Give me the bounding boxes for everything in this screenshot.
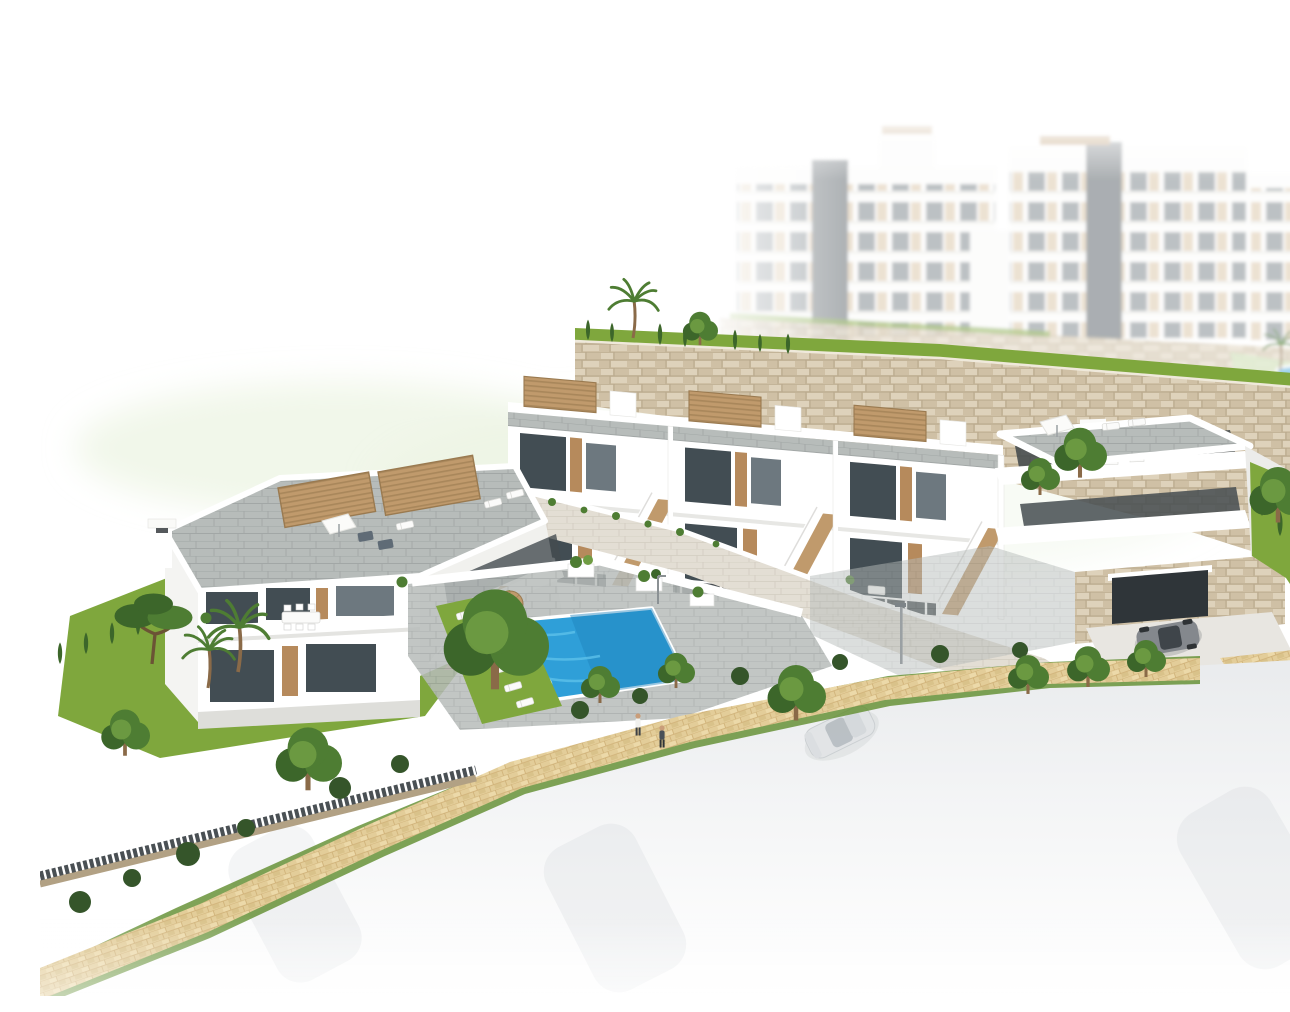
bottom-fade — [40, 916, 1290, 996]
architectural-render: Aerial 3D architectural rendering of a w… — [40, 16, 1290, 996]
terrace-dining-set — [282, 604, 320, 630]
villa-chimney — [148, 519, 176, 568]
